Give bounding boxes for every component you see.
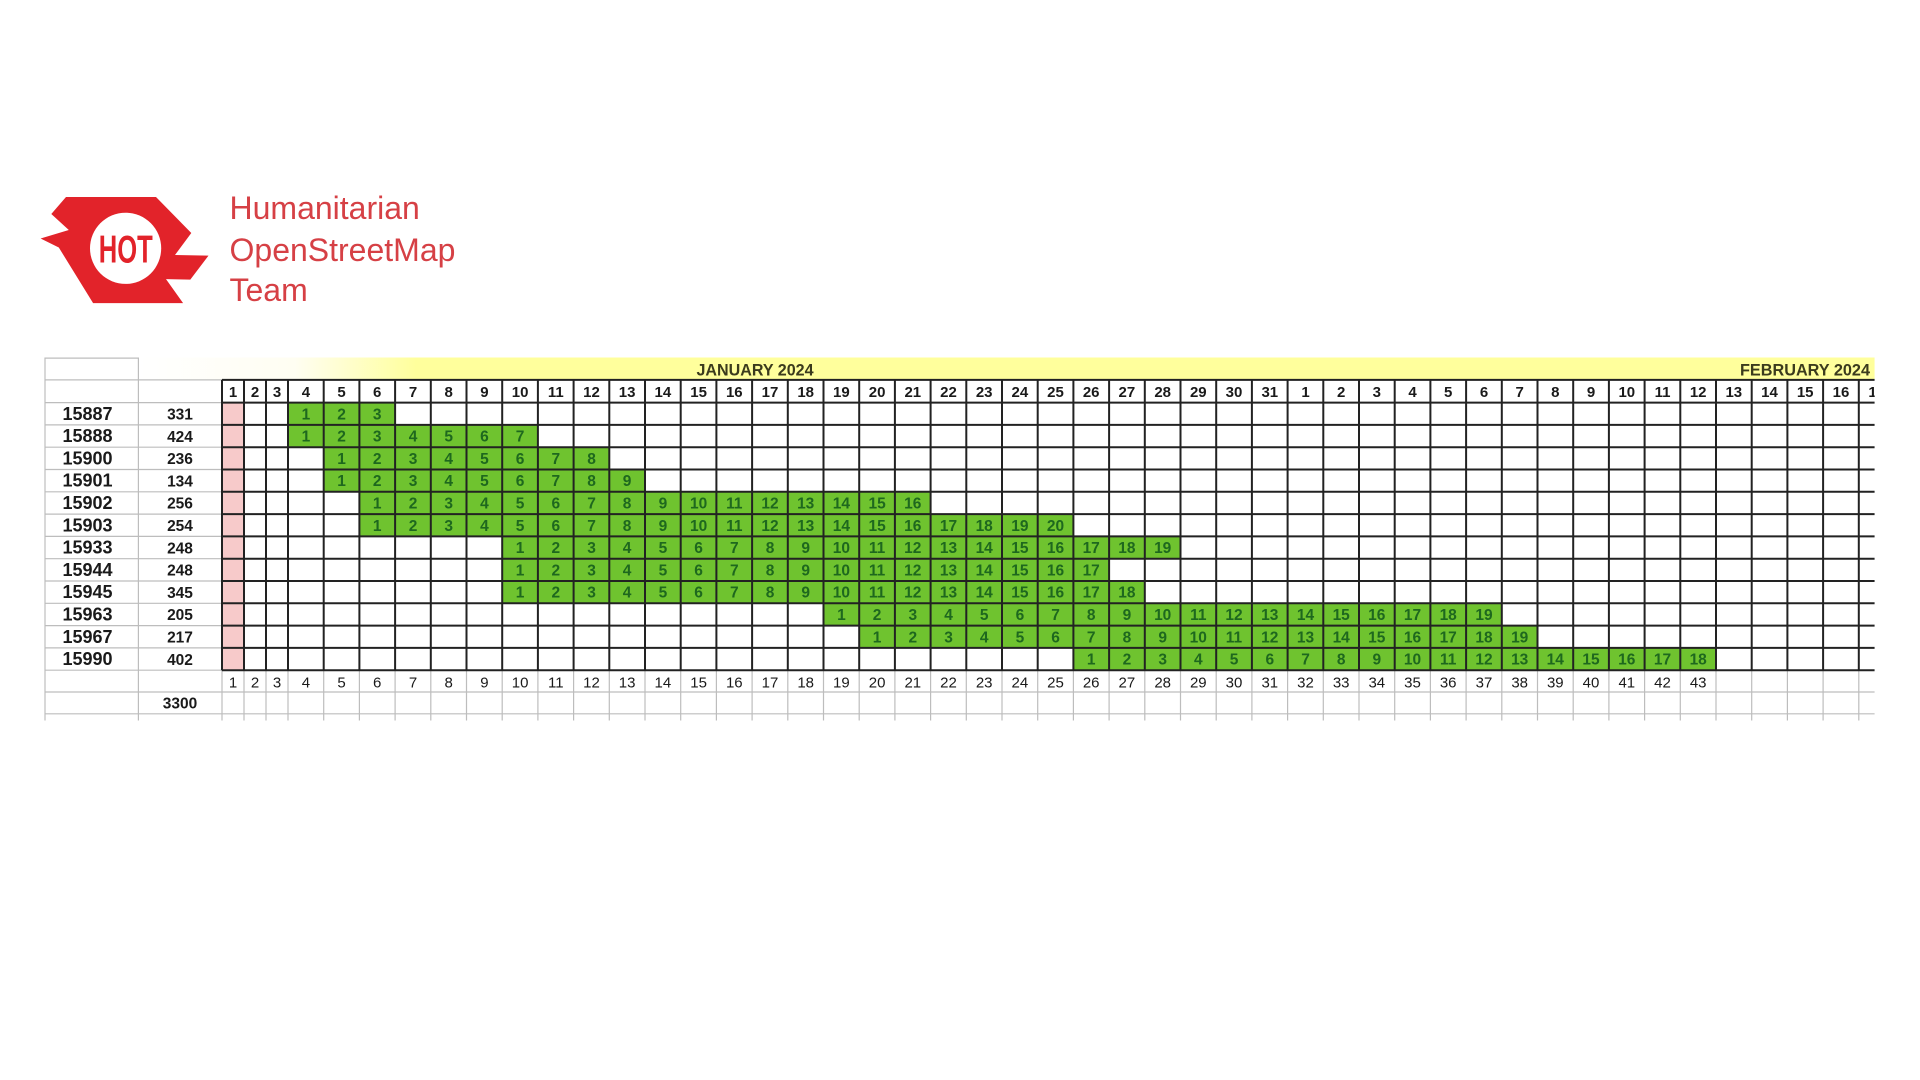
svg-text:8: 8: [766, 562, 775, 579]
svg-text:14: 14: [833, 518, 851, 535]
svg-text:1: 1: [1301, 384, 1309, 401]
svg-text:2: 2: [373, 451, 382, 468]
svg-text:11: 11: [1226, 629, 1243, 646]
svg-text:331: 331: [167, 407, 193, 424]
svg-text:1: 1: [337, 451, 346, 468]
svg-text:5: 5: [1016, 629, 1025, 646]
svg-text:9: 9: [1372, 652, 1381, 669]
svg-text:5: 5: [480, 473, 489, 490]
svg-text:15903: 15903: [62, 515, 112, 535]
svg-text:23: 23: [976, 384, 993, 401]
svg-text:19: 19: [1154, 540, 1172, 557]
svg-text:14: 14: [1333, 629, 1351, 646]
svg-text:5: 5: [516, 496, 525, 513]
svg-text:1: 1: [229, 674, 237, 691]
svg-text:13: 13: [1261, 607, 1279, 624]
svg-text:35: 35: [1404, 674, 1421, 691]
svg-text:1: 1: [837, 607, 846, 624]
svg-text:1: 1: [337, 473, 346, 490]
svg-text:19: 19: [1011, 518, 1029, 535]
svg-text:2: 2: [551, 585, 560, 602]
svg-text:6: 6: [373, 384, 381, 401]
svg-text:8: 8: [766, 540, 775, 557]
svg-text:7: 7: [1301, 652, 1310, 669]
svg-text:16: 16: [1618, 652, 1636, 669]
svg-text:19: 19: [1511, 629, 1529, 646]
svg-text:7: 7: [551, 451, 560, 468]
svg-text:19: 19: [833, 674, 850, 691]
svg-text:42: 42: [1654, 674, 1671, 691]
svg-text:10: 10: [1618, 384, 1635, 401]
svg-text:134: 134: [167, 473, 193, 490]
svg-text:1: 1: [373, 518, 382, 535]
svg-text:30: 30: [1226, 674, 1243, 691]
svg-text:34: 34: [1368, 674, 1385, 691]
svg-text:11: 11: [726, 518, 743, 535]
svg-text:13: 13: [940, 562, 958, 579]
svg-text:217: 217: [167, 630, 193, 647]
svg-text:12: 12: [904, 540, 921, 557]
svg-text:9: 9: [801, 562, 810, 579]
svg-text:2: 2: [1337, 384, 1345, 401]
svg-text:18: 18: [1690, 652, 1708, 669]
svg-text:6: 6: [1051, 629, 1060, 646]
svg-text:15: 15: [868, 518, 886, 535]
svg-text:3: 3: [587, 562, 596, 579]
svg-text:402: 402: [167, 652, 193, 669]
svg-text:4: 4: [302, 384, 311, 401]
svg-text:24: 24: [1012, 674, 1029, 691]
svg-text:16: 16: [726, 674, 743, 691]
svg-text:26: 26: [1083, 674, 1100, 691]
svg-text:1: 1: [229, 384, 237, 401]
svg-text:19: 19: [833, 384, 850, 401]
svg-text:11: 11: [869, 562, 886, 579]
svg-text:5: 5: [1230, 652, 1239, 669]
svg-text:3: 3: [587, 540, 596, 557]
svg-text:13: 13: [619, 384, 636, 401]
svg-text:248: 248: [167, 540, 193, 557]
svg-text:7: 7: [1051, 607, 1060, 624]
svg-text:7: 7: [409, 384, 417, 401]
svg-text:1: 1: [302, 406, 311, 423]
svg-text:18: 18: [1440, 607, 1458, 624]
svg-text:40: 40: [1583, 674, 1600, 691]
svg-text:7: 7: [587, 518, 596, 535]
svg-text:17: 17: [1404, 607, 1421, 624]
svg-text:3: 3: [273, 674, 281, 691]
svg-text:37: 37: [1476, 674, 1493, 691]
svg-text:3: 3: [373, 406, 382, 423]
svg-text:14: 14: [655, 384, 672, 401]
svg-text:4: 4: [444, 473, 453, 490]
svg-text:5: 5: [659, 540, 668, 557]
svg-text:3: 3: [908, 607, 917, 624]
svg-text:10: 10: [690, 518, 707, 535]
svg-text:31: 31: [1261, 674, 1278, 691]
svg-text:10: 10: [690, 496, 707, 513]
svg-text:8: 8: [766, 585, 775, 602]
svg-text:15888: 15888: [62, 426, 112, 446]
svg-text:15963: 15963: [62, 605, 112, 625]
svg-text:248: 248: [167, 563, 193, 580]
svg-text:29: 29: [1190, 674, 1207, 691]
svg-text:17: 17: [1083, 585, 1100, 602]
svg-text:13: 13: [797, 496, 815, 513]
svg-text:22: 22: [940, 384, 957, 401]
svg-text:6: 6: [1265, 652, 1274, 669]
svg-text:13: 13: [619, 674, 636, 691]
svg-text:14: 14: [1761, 384, 1778, 401]
svg-text:15990: 15990: [62, 649, 112, 669]
svg-text:38: 38: [1511, 674, 1528, 691]
svg-text:26: 26: [1083, 384, 1100, 401]
svg-text:32: 32: [1297, 674, 1314, 691]
svg-text:43: 43: [1690, 674, 1707, 691]
svg-text:15901: 15901: [62, 471, 112, 491]
svg-text:12: 12: [761, 496, 778, 513]
svg-text:8: 8: [1123, 629, 1132, 646]
svg-text:15900: 15900: [62, 448, 112, 468]
svg-text:18: 18: [797, 674, 814, 691]
svg-text:14: 14: [1297, 607, 1315, 624]
svg-text:13: 13: [797, 518, 815, 535]
svg-text:3: 3: [1158, 652, 1167, 669]
svg-text:2: 2: [337, 406, 346, 423]
svg-text:2: 2: [908, 629, 917, 646]
svg-text:18: 18: [1118, 540, 1136, 557]
svg-text:13: 13: [1511, 652, 1529, 669]
svg-text:9: 9: [1587, 384, 1595, 401]
svg-text:5: 5: [1444, 384, 1452, 401]
svg-text:23: 23: [976, 674, 993, 691]
svg-text:12: 12: [1690, 384, 1707, 401]
svg-text:254: 254: [167, 518, 193, 535]
svg-text:17: 17: [1868, 384, 1885, 401]
svg-text:17: 17: [1083, 562, 1100, 579]
svg-text:7: 7: [587, 496, 596, 513]
svg-text:3: 3: [373, 429, 382, 446]
svg-text:3300: 3300: [163, 696, 197, 713]
svg-text:18: 18: [1118, 585, 1136, 602]
svg-text:9: 9: [801, 585, 810, 602]
svg-text:7: 7: [730, 585, 739, 602]
svg-text:2: 2: [409, 496, 418, 513]
svg-text:2: 2: [251, 384, 259, 401]
svg-text:22: 22: [940, 674, 957, 691]
svg-text:15: 15: [690, 384, 707, 401]
svg-text:12: 12: [1475, 652, 1492, 669]
svg-text:28: 28: [1154, 384, 1171, 401]
svg-text:4: 4: [623, 562, 632, 579]
svg-text:20: 20: [869, 384, 886, 401]
svg-text:9: 9: [659, 518, 668, 535]
svg-text:8: 8: [587, 451, 596, 468]
svg-text:4: 4: [623, 540, 632, 557]
svg-text:2: 2: [873, 607, 882, 624]
svg-text:17: 17: [940, 518, 957, 535]
svg-text:10: 10: [833, 540, 850, 557]
svg-text:8: 8: [623, 496, 632, 513]
svg-text:6: 6: [551, 496, 560, 513]
svg-text:5: 5: [980, 607, 989, 624]
svg-text:HOT: HOT: [99, 229, 153, 272]
svg-text:4: 4: [444, 451, 453, 468]
svg-text:13: 13: [1297, 629, 1315, 646]
svg-text:9: 9: [1123, 607, 1132, 624]
svg-text:27: 27: [1119, 674, 1136, 691]
svg-text:9: 9: [659, 496, 668, 513]
svg-text:1: 1: [516, 562, 525, 579]
svg-text:4: 4: [409, 429, 418, 446]
svg-text:28: 28: [1154, 674, 1171, 691]
svg-text:11: 11: [1440, 652, 1457, 669]
svg-text:7: 7: [730, 562, 739, 579]
svg-text:11: 11: [1655, 384, 1671, 401]
svg-text:5: 5: [337, 674, 345, 691]
svg-text:15: 15: [1011, 585, 1029, 602]
svg-text:8: 8: [445, 384, 453, 401]
svg-text:5: 5: [444, 429, 453, 446]
svg-text:10: 10: [1404, 652, 1421, 669]
svg-text:2: 2: [1123, 652, 1132, 669]
svg-text:16: 16: [726, 384, 743, 401]
svg-text:12: 12: [761, 518, 778, 535]
svg-text:3: 3: [444, 496, 453, 513]
svg-text:14: 14: [976, 562, 994, 579]
svg-text:21: 21: [904, 384, 921, 401]
svg-text:OpenStreetMap: OpenStreetMap: [230, 232, 456, 268]
svg-text:7: 7: [730, 540, 739, 557]
svg-text:18: 18: [797, 384, 814, 401]
svg-text:1: 1: [516, 540, 525, 557]
svg-text:6: 6: [694, 562, 703, 579]
svg-text:10: 10: [1154, 607, 1171, 624]
svg-text:14: 14: [655, 674, 672, 691]
svg-text:3: 3: [444, 518, 453, 535]
svg-text:30: 30: [1226, 384, 1243, 401]
svg-text:16: 16: [1047, 562, 1065, 579]
svg-text:11: 11: [548, 674, 564, 691]
svg-text:10: 10: [833, 585, 850, 602]
svg-text:3: 3: [409, 473, 418, 490]
svg-text:3: 3: [409, 451, 418, 468]
svg-text:15: 15: [868, 496, 886, 513]
svg-text:14: 14: [976, 540, 994, 557]
svg-text:15: 15: [1011, 562, 1029, 579]
svg-text:10: 10: [512, 384, 529, 401]
svg-text:14: 14: [976, 585, 994, 602]
svg-text:21: 21: [904, 674, 921, 691]
svg-text:15: 15: [1797, 384, 1814, 401]
svg-text:12: 12: [904, 585, 921, 602]
svg-text:33: 33: [1333, 674, 1350, 691]
svg-text:3: 3: [273, 384, 281, 401]
svg-text:10: 10: [833, 562, 850, 579]
svg-text:11: 11: [548, 384, 564, 401]
svg-text:16: 16: [1047, 540, 1065, 557]
svg-text:2: 2: [251, 674, 259, 691]
svg-text:4: 4: [480, 496, 489, 513]
svg-text:16: 16: [1404, 629, 1422, 646]
svg-text:6: 6: [1016, 607, 1025, 624]
svg-text:17: 17: [762, 384, 779, 401]
svg-text:18: 18: [1475, 629, 1493, 646]
svg-text:6: 6: [694, 540, 703, 557]
svg-text:11: 11: [869, 585, 886, 602]
svg-text:6: 6: [373, 674, 381, 691]
svg-text:9: 9: [801, 540, 810, 557]
svg-text:4: 4: [1408, 384, 1417, 401]
svg-text:24: 24: [1012, 384, 1029, 401]
svg-text:16: 16: [1833, 384, 1850, 401]
svg-text:11: 11: [869, 540, 886, 557]
svg-text:3: 3: [944, 629, 953, 646]
svg-text:236: 236: [167, 451, 193, 468]
svg-text:6: 6: [480, 429, 489, 446]
svg-text:6: 6: [516, 451, 525, 468]
svg-text:8: 8: [445, 674, 453, 691]
svg-text:424: 424: [167, 429, 193, 446]
svg-text:12: 12: [583, 384, 600, 401]
svg-text:12: 12: [1261, 629, 1278, 646]
svg-text:16: 16: [904, 496, 922, 513]
svg-text:14: 14: [833, 496, 851, 513]
svg-text:13: 13: [940, 585, 958, 602]
svg-text:39: 39: [1547, 674, 1564, 691]
svg-text:11: 11: [1190, 607, 1207, 624]
svg-text:15: 15: [1582, 652, 1600, 669]
svg-text:1: 1: [302, 429, 311, 446]
svg-text:7: 7: [1516, 384, 1524, 401]
svg-text:10: 10: [1190, 629, 1207, 646]
svg-text:8: 8: [1337, 652, 1346, 669]
svg-text:11: 11: [726, 496, 743, 513]
svg-text:10: 10: [512, 674, 529, 691]
svg-text:41: 41: [1618, 674, 1635, 691]
svg-text:345: 345: [167, 585, 193, 602]
svg-text:1: 1: [1087, 652, 1096, 669]
svg-text:5: 5: [659, 562, 668, 579]
svg-text:18: 18: [976, 518, 994, 535]
svg-text:17: 17: [1654, 652, 1671, 669]
svg-text:9: 9: [1158, 629, 1167, 646]
svg-text:7: 7: [409, 674, 417, 691]
svg-text:31: 31: [1261, 384, 1278, 401]
svg-text:16: 16: [904, 518, 922, 535]
svg-text:17: 17: [762, 674, 779, 691]
svg-text:17: 17: [1083, 540, 1100, 557]
svg-text:8: 8: [1087, 607, 1096, 624]
svg-text:9: 9: [623, 473, 632, 490]
svg-text:FEBRUARY 2024: FEBRUARY 2024: [1740, 360, 1871, 379]
svg-text:15902: 15902: [62, 493, 112, 513]
svg-text:15887: 15887: [62, 404, 112, 424]
svg-text:2: 2: [551, 540, 560, 557]
svg-text:17: 17: [1440, 629, 1457, 646]
svg-text:9: 9: [480, 384, 488, 401]
svg-text:4: 4: [980, 629, 989, 646]
svg-text:7: 7: [516, 429, 525, 446]
svg-text:5: 5: [480, 451, 489, 468]
svg-text:6: 6: [516, 473, 525, 490]
svg-text:19: 19: [1475, 607, 1493, 624]
svg-text:12: 12: [583, 674, 600, 691]
svg-text:25: 25: [1047, 384, 1064, 401]
svg-text:12: 12: [904, 562, 921, 579]
svg-text:Team: Team: [230, 272, 308, 308]
svg-text:1: 1: [516, 585, 525, 602]
svg-text:4: 4: [1194, 652, 1203, 669]
svg-text:27: 27: [1119, 384, 1136, 401]
svg-text:5: 5: [516, 518, 525, 535]
svg-text:13: 13: [1725, 384, 1742, 401]
svg-text:3: 3: [1373, 384, 1381, 401]
svg-text:16: 16: [1368, 607, 1386, 624]
svg-text:8: 8: [623, 518, 632, 535]
svg-text:36: 36: [1440, 674, 1457, 691]
svg-text:20: 20: [1047, 518, 1064, 535]
svg-text:6: 6: [1480, 384, 1488, 401]
svg-text:25: 25: [1047, 674, 1064, 691]
svg-text:2: 2: [337, 429, 346, 446]
svg-text:15933: 15933: [62, 538, 112, 558]
svg-text:7: 7: [1087, 629, 1096, 646]
svg-text:256: 256: [167, 496, 193, 513]
svg-text:Humanitarian: Humanitarian: [230, 190, 420, 226]
svg-text:15: 15: [1011, 540, 1029, 557]
svg-text:2: 2: [551, 562, 560, 579]
svg-text:4: 4: [480, 518, 489, 535]
svg-text:16: 16: [1047, 585, 1065, 602]
svg-text:9: 9: [480, 674, 488, 691]
svg-text:1: 1: [373, 496, 382, 513]
svg-text:8: 8: [587, 473, 596, 490]
svg-text:15: 15: [1333, 607, 1351, 624]
svg-text:20: 20: [869, 674, 886, 691]
svg-text:4: 4: [302, 674, 310, 691]
svg-text:15944: 15944: [62, 560, 112, 580]
svg-text:5: 5: [337, 384, 345, 401]
svg-text:1: 1: [873, 629, 882, 646]
svg-text:JANUARY 2024: JANUARY 2024: [697, 360, 815, 379]
svg-text:205: 205: [167, 607, 193, 624]
svg-text:15967: 15967: [62, 627, 112, 647]
svg-text:4: 4: [623, 585, 632, 602]
svg-text:12: 12: [1225, 607, 1242, 624]
svg-text:4: 4: [944, 607, 953, 624]
svg-text:15: 15: [1368, 629, 1386, 646]
svg-text:6: 6: [694, 585, 703, 602]
svg-text:6: 6: [551, 518, 560, 535]
svg-text:2: 2: [373, 473, 382, 490]
svg-text:7: 7: [551, 473, 560, 490]
svg-text:13: 13: [940, 540, 958, 557]
svg-text:15: 15: [690, 674, 707, 691]
svg-text:5: 5: [659, 585, 668, 602]
svg-text:15945: 15945: [62, 582, 112, 602]
svg-text:2: 2: [409, 518, 418, 535]
svg-text:3: 3: [587, 585, 596, 602]
svg-text:8: 8: [1551, 384, 1559, 401]
svg-text:29: 29: [1190, 384, 1207, 401]
svg-text:14: 14: [1547, 652, 1565, 669]
